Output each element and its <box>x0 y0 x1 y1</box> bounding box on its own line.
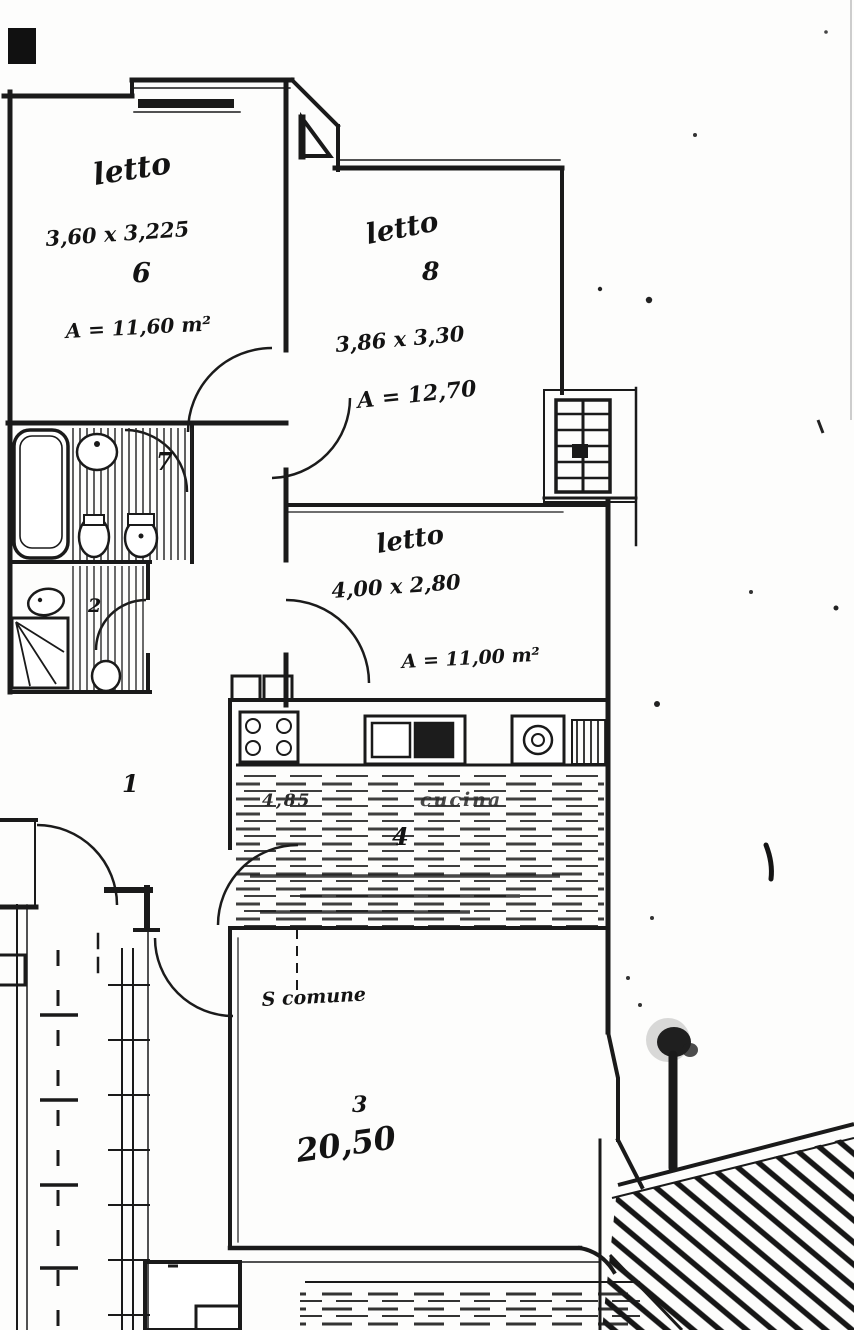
toilet <box>125 514 157 557</box>
floor-plan-scan: letto 3,60 x 3,225 6 A = 11,60 m² letto … <box>0 0 854 1330</box>
double-sink <box>365 716 465 764</box>
room-number: 6 <box>132 258 151 289</box>
stove <box>240 712 298 762</box>
room-number: 8 <box>421 257 439 286</box>
room-name: cucina <box>420 789 502 811</box>
floor-plan-drawing: letto 3,60 x 3,225 6 A = 11,60 m² letto … <box>0 0 854 1330</box>
window-room6 <box>138 99 234 108</box>
label-bath-main-number: 7 <box>156 447 173 476</box>
toilet-second <box>92 661 120 691</box>
bathtub <box>14 430 68 558</box>
shower-tray <box>12 618 68 688</box>
label-hallway-number: 1 <box>122 769 139 798</box>
bidet <box>79 515 109 557</box>
label-bath-second-number: 2 <box>87 595 101 617</box>
kitchen-fixture <box>572 720 606 764</box>
room-number: 4 <box>392 822 409 851</box>
washing-machine <box>512 716 564 764</box>
balcony-room <box>145 1262 240 1330</box>
room-number: 3 <box>352 1092 367 1118</box>
balcony-floor-smudge <box>300 1288 640 1330</box>
scan-black-mark <box>8 28 36 64</box>
sink <box>77 434 117 470</box>
kitchen-dim: 4,85 <box>262 791 311 811</box>
